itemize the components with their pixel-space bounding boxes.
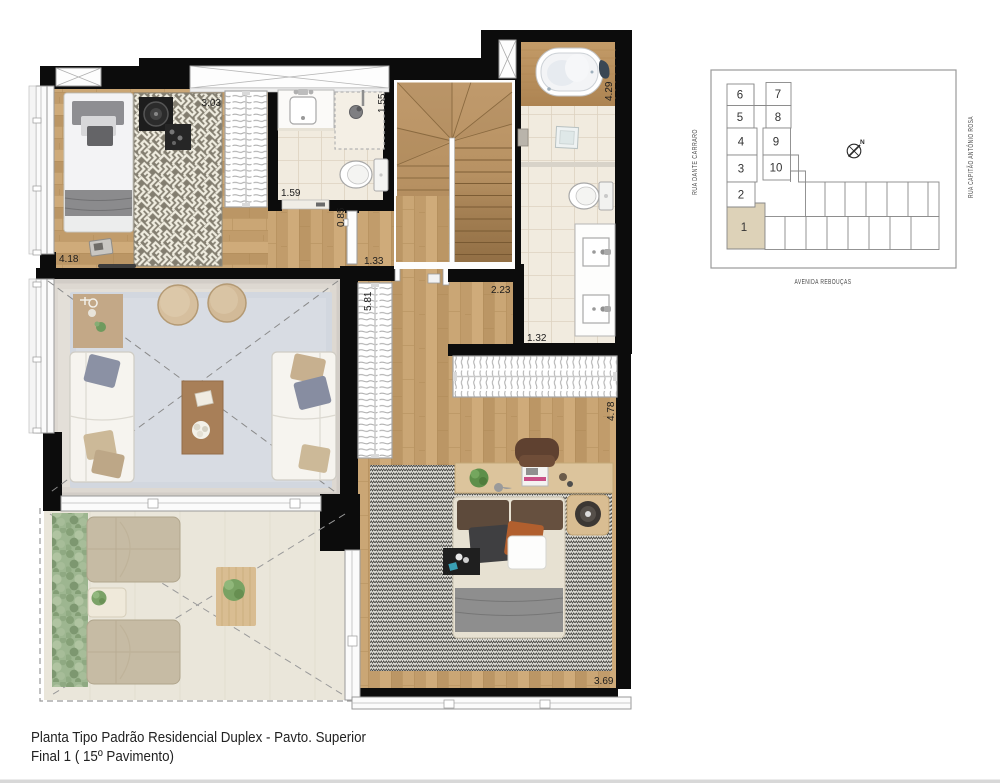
svg-text:Final 1 ( 15º Pavimento): Final 1 ( 15º Pavimento) [31,748,174,765]
svg-text:1: 1 [741,222,747,234]
svg-text:2: 2 [738,190,744,202]
svg-text:0.85: 0.85 [336,207,347,227]
svg-text:Planta Tipo Padrão Residencial: Planta Tipo Padrão Residencial Duplex - … [31,729,366,746]
svg-text:RUA DANTE CARRARO: RUA DANTE CARRARO [690,129,699,195]
svg-text:7: 7 [775,89,781,101]
svg-text:9: 9 [773,137,779,149]
svg-text:4.78: 4.78 [606,401,617,421]
svg-text:AVENIDA REBOUÇAS: AVENIDA REBOUÇAS [795,277,852,286]
svg-text:8: 8 [775,112,781,124]
svg-text:1.55: 1.55 [377,93,388,113]
svg-text:N: N [860,139,865,146]
svg-text:2.23: 2.23 [491,285,511,296]
svg-text:3: 3 [738,164,744,176]
svg-text:3.69: 3.69 [594,676,614,687]
svg-text:RUA CAPITÃO ANTÔNIO ROSA: RUA CAPITÃO ANTÔNIO ROSA [966,116,975,198]
svg-text:1.33: 1.33 [364,256,384,267]
svg-text:5.81: 5.81 [363,291,374,311]
svg-text:4.18: 4.18 [59,254,79,265]
svg-text:4.29: 4.29 [604,81,615,101]
svg-text:1.32: 1.32 [527,333,547,344]
svg-text:3.03: 3.03 [202,98,222,109]
svg-text:10: 10 [770,163,783,175]
svg-text:1.59: 1.59 [281,188,301,199]
svg-text:5: 5 [737,112,743,124]
svg-text:6: 6 [737,90,743,102]
svg-text:4: 4 [738,137,745,149]
